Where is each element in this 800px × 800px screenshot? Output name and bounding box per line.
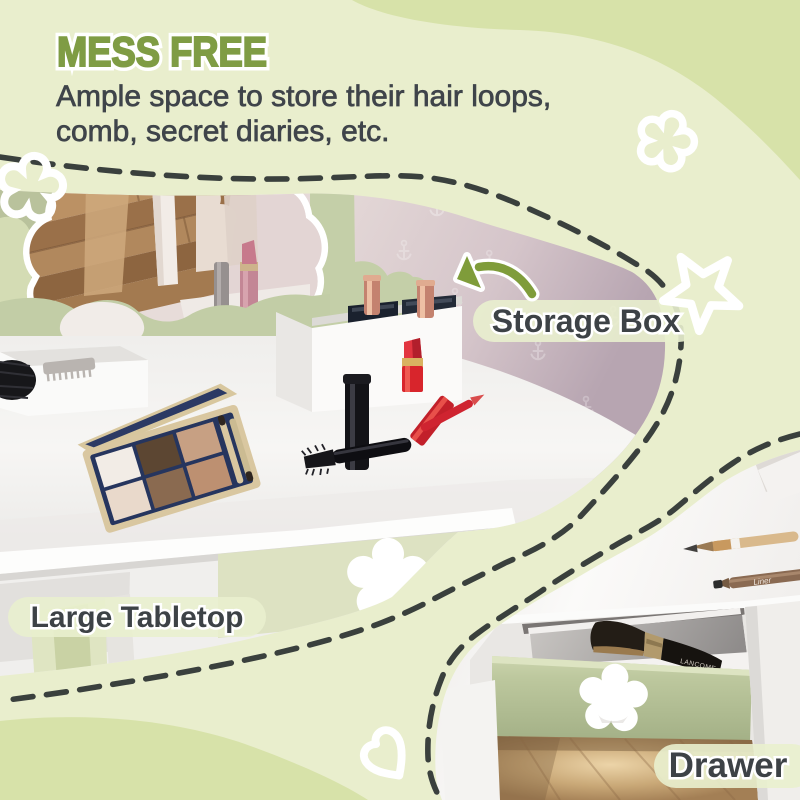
svg-text:Storage Box: Storage Box	[492, 303, 681, 339]
svg-text:comb, secret diaries, etc.: comb, secret diaries, etc.	[56, 115, 389, 148]
svg-text:Ample space to store their hai: Ample space to store their hair loops,	[56, 80, 551, 113]
svg-text:Large Tabletop: Large Tabletop	[31, 601, 244, 634]
svg-text:MESS FREE: MESS FREE	[57, 28, 267, 75]
svg-text:Drawer: Drawer	[669, 746, 788, 785]
